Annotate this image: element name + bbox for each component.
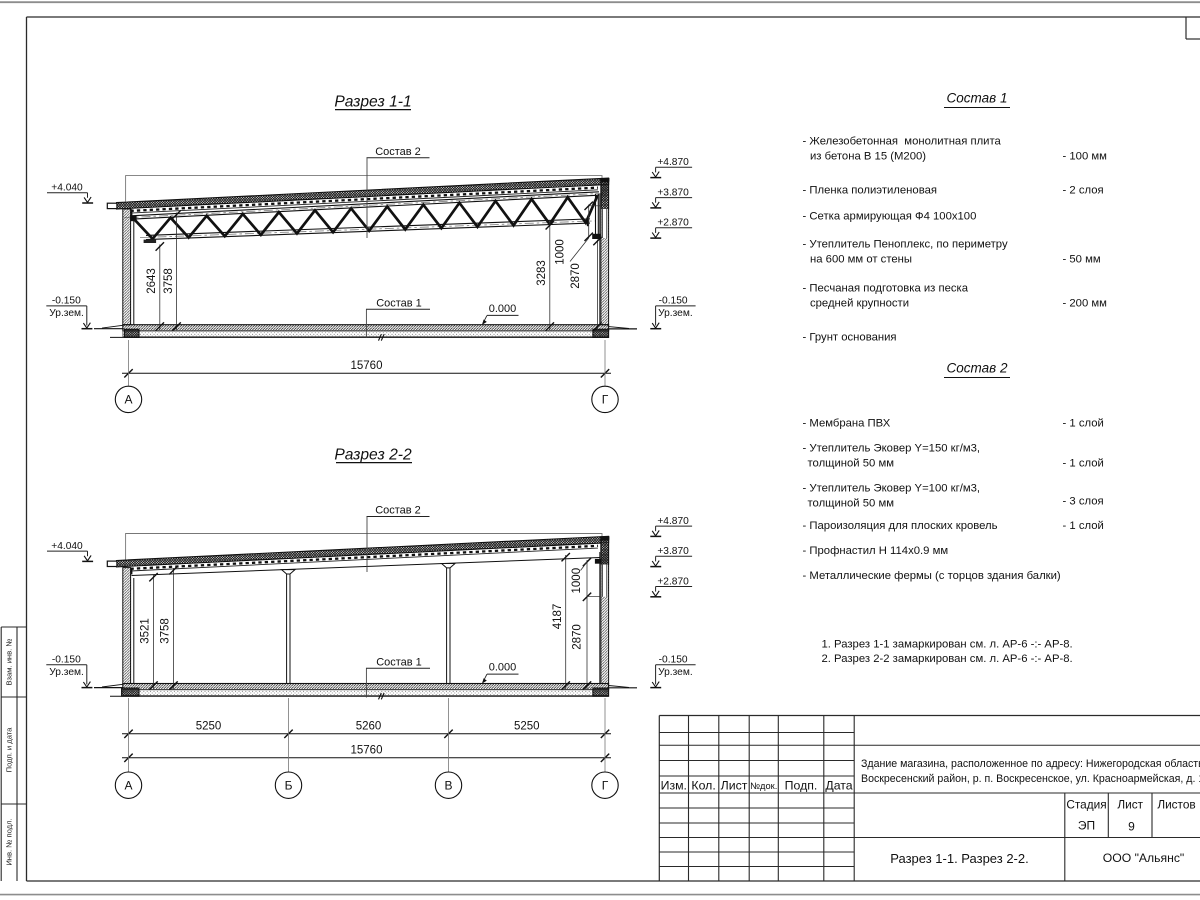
svg-text:- Утеплитель Эковер Y=100 кг/м: - Утеплитель Эковер Y=100 кг/м3,: [803, 483, 981, 495]
svg-text:5250: 5250: [196, 721, 222, 733]
svg-text:Здание магазина, расположенное: Здание магазина, расположенное по адресу…: [861, 758, 1200, 770]
svg-text:Листов: Листов: [1157, 798, 1195, 812]
svg-text:Лист: Лист: [721, 779, 748, 793]
svg-text:А: А: [124, 393, 132, 407]
svg-text:Г: Г: [602, 393, 609, 407]
svg-text:- Мембрана ПВХ: - Мембрана ПВХ: [803, 418, 891, 430]
svg-text:из бетона В 15 (М200): из бетона В 15 (М200): [810, 150, 926, 162]
svg-text:Ур.зем.: Ур.зем.: [49, 308, 84, 319]
svg-text:ООО "Альянс": ООО "Альянс": [1103, 851, 1185, 865]
svg-text:+2.870: +2.870: [657, 218, 689, 229]
svg-text:Состав 1: Состав 1: [947, 91, 1008, 106]
svg-text:- Профнастил Н 114х0.9 мм: - Профнастил Н 114х0.9 мм: [803, 545, 949, 557]
svg-text:- 2 слоя: - 2 слоя: [1063, 185, 1104, 197]
svg-text:Воскресенский район, р. п. Вос: Воскресенский район, р. п. Воскресенское…: [861, 773, 1200, 785]
svg-text:+2.870: +2.870: [657, 576, 689, 587]
svg-text:0.000: 0.000: [489, 303, 517, 315]
svg-text:толщиной 50 мм: толщиной 50 мм: [808, 457, 895, 469]
svg-text:- 3 слоя: - 3 слоя: [1063, 495, 1104, 507]
svg-text:Лист: Лист: [1117, 798, 1143, 812]
svg-text:Б: Б: [285, 778, 293, 792]
svg-text:0.000: 0.000: [489, 662, 517, 674]
svg-text:В: В: [444, 778, 452, 792]
svg-text:- Сетка армирующая Ф4 100х100: - Сетка армирующая Ф4 100х100: [803, 211, 977, 223]
svg-text:3283: 3283: [536, 260, 548, 286]
svg-text:- Утеплитель Пеноплекс, по пер: - Утеплитель Пеноплекс, по периметру: [803, 239, 1008, 251]
svg-text:15760: 15760: [351, 360, 383, 372]
svg-text:Стадия: Стадия: [1066, 798, 1106, 812]
svg-text:- 100 мм: - 100 мм: [1063, 150, 1107, 162]
svg-text:Ур.зем.: Ур.зем.: [49, 667, 84, 678]
svg-text:2870: 2870: [572, 624, 584, 650]
svg-text:Г: Г: [602, 778, 609, 792]
svg-text:№док.: №док.: [750, 781, 777, 791]
svg-text:Ур.зем.: Ур.зем.: [658, 667, 693, 678]
svg-text:+3.870: +3.870: [657, 546, 689, 557]
svg-text:+4.040: +4.040: [51, 183, 83, 194]
svg-text:Кол.: Кол.: [691, 779, 715, 793]
svg-text:Разрез 1-1. Разрез 2-2.: Разрез 1-1. Разрез 2-2.: [890, 851, 1028, 866]
svg-text:3521: 3521: [140, 618, 152, 644]
svg-text:Подп.: Подп.: [785, 779, 818, 793]
svg-text:- Грунт основания: - Грунт основания: [803, 332, 897, 344]
svg-text:- 50 мм: - 50 мм: [1063, 253, 1101, 265]
svg-text:Разрез 2-2: Разрез 2-2: [334, 446, 412, 463]
svg-text:толщиной 50 мм: толщиной 50 мм: [808, 497, 895, 509]
svg-text:+4.870: +4.870: [657, 157, 689, 168]
svg-text:1. Разрез 1-1 замаркирован см.: 1. Разрез 1-1 замаркирован см. л. АР-6 -…: [822, 639, 1073, 651]
svg-text:Состав 2: Состав 2: [375, 146, 421, 158]
svg-text:2643: 2643: [146, 268, 158, 294]
svg-text:3758: 3758: [163, 268, 175, 294]
svg-text:5250: 5250: [514, 721, 540, 733]
svg-text:9: 9: [1128, 820, 1135, 834]
svg-text:- Пароизоляция для плоских кро: - Пароизоляция для плоских кровель: [803, 520, 998, 532]
svg-text:+4.040: +4.040: [51, 541, 83, 552]
svg-text:+3.870: +3.870: [657, 187, 689, 198]
svg-text:5260: 5260: [356, 721, 382, 733]
svg-text:15760: 15760: [351, 745, 383, 757]
svg-text:2870: 2870: [570, 263, 582, 289]
svg-text:Ур.зем.: Ур.зем.: [658, 308, 693, 319]
svg-text:3758: 3758: [160, 618, 172, 644]
svg-text:-0.150: -0.150: [659, 296, 688, 307]
svg-text:-0.150: -0.150: [52, 296, 81, 307]
svg-text:- Металлические фермы (с торцо: - Металлические фермы (с торцов здания б…: [803, 570, 1061, 582]
svg-text:Разрез 1-1: Разрез 1-1: [334, 93, 411, 110]
svg-text:- Утеплитель Эковер Y=150 кг/м: - Утеплитель Эковер Y=150 кг/м3,: [803, 443, 981, 455]
svg-text:- Железобетонная монолитная п: - Железобетонная монолитная плита: [803, 136, 1002, 148]
svg-text:Состав 1: Состав 1: [376, 656, 422, 668]
svg-text:- 1 слой: - 1 слой: [1063, 457, 1104, 469]
svg-text:Подп. и дата: Подп. и дата: [5, 727, 14, 773]
svg-text:- Песчаная подготовка из песка: - Песчаная подготовка из песка: [803, 283, 969, 295]
svg-text:- Пленка полиэтиленовая: - Пленка полиэтиленовая: [803, 185, 937, 197]
svg-text:Изм.: Изм.: [661, 779, 687, 793]
svg-text:+4.870: +4.870: [657, 516, 689, 527]
svg-text:Инв. № подл.: Инв. № подл.: [5, 818, 14, 865]
svg-text:4187: 4187: [552, 604, 564, 630]
svg-text:- 1 слой: - 1 слой: [1063, 418, 1104, 430]
svg-text:1000: 1000: [571, 568, 583, 594]
svg-text:Состав 1: Состав 1: [376, 297, 422, 309]
svg-text:Взам. инв. №: Взам. инв. №: [5, 638, 14, 685]
svg-text:средней крупности: средней крупности: [810, 297, 909, 309]
svg-text:Дата: Дата: [825, 779, 852, 793]
svg-text:ЭП: ЭП: [1078, 819, 1095, 833]
svg-text:- 1 слой: - 1 слой: [1063, 520, 1104, 532]
svg-text:А: А: [124, 778, 132, 792]
svg-text:Состав 2: Состав 2: [947, 361, 1008, 376]
svg-text:- 200 мм: - 200 мм: [1063, 297, 1107, 309]
svg-text:-0.150: -0.150: [52, 655, 81, 666]
svg-text:2. Разрез 2-2 замаркирован см.: 2. Разрез 2-2 замаркирован см. л. АР-6 -…: [822, 653, 1073, 665]
svg-text:1000: 1000: [555, 239, 567, 265]
svg-text:-0.150: -0.150: [659, 655, 688, 666]
svg-text:Состав 2: Состав 2: [375, 505, 421, 517]
svg-text:на 600 мм от стены: на 600 мм от стены: [810, 253, 912, 265]
